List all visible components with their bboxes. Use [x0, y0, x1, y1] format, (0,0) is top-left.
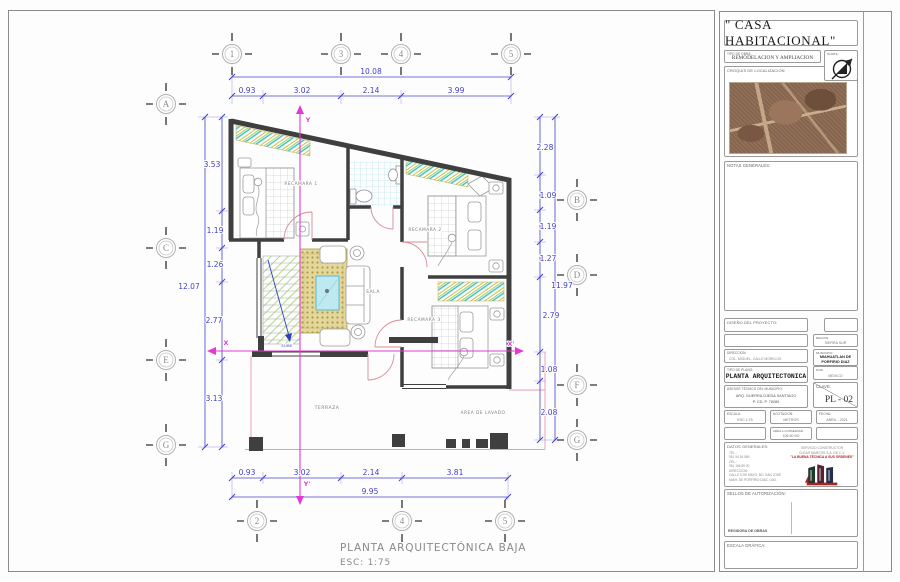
- notas-box: NOTAS GENERALES:: [724, 161, 858, 311]
- acotacion-value: METROS: [771, 418, 811, 422]
- region-box: REGION: SIERRA SUR: [813, 334, 858, 347]
- spare-box-3: [724, 427, 766, 440]
- datos-contact: TEL.: 951 54 34 565 CEL.: 951 166 89 00 …: [729, 451, 781, 482]
- fecha-label: FECHA:: [819, 412, 831, 416]
- empresa-block: SERVICIO CONSTRUCTOR CLEAR MARCOS S.A. D…: [787, 446, 857, 493]
- clave-label: CLAVE:: [816, 384, 831, 389]
- drawing-sheet: 1345245ACEGBDFG10.080.933.022.143.999.95…: [0, 0, 900, 582]
- area-label: AREA A CONSERVAR:: [773, 429, 804, 433]
- tipo-plano-label: TIPO DE PLANO:: [727, 368, 753, 372]
- location-satellite-image: [729, 82, 847, 154]
- tipo-plano-box: TIPO DE PLANO: PLANTA ARQUITECTONICA: [724, 366, 808, 383]
- escala-label: ESCALA:: [727, 412, 741, 416]
- area-value: 106.50 M2: [771, 434, 811, 438]
- escala-grafica-box: ESCALA GRÁFICA:: [724, 541, 858, 569]
- sellos-label: SELLOS DE AUTORIZACIÓN:: [727, 491, 786, 496]
- tipo-obra-box: TIPO DE OBRA: REMODELACION Y AMPLIACION: [724, 50, 821, 63]
- clave-box: CLAVE: PL - 02: [813, 382, 858, 408]
- spare-box-2: [724, 334, 808, 347]
- direccion-value: COL. MIGUEL, CALLE MORELOS: [729, 357, 807, 361]
- diseno-box: DISEÑO DEL PROYECTO:: [724, 318, 808, 332]
- fecha-box: FECHA: ABRIL - 2021: [816, 410, 858, 424]
- direccion-box: DIRECCION: COL. MIGUEL, CALLE MORELOS: [724, 349, 808, 363]
- direccion-label: DIRECCION:: [727, 351, 746, 355]
- spare-box-4: [816, 427, 858, 440]
- datos-box: DATOS GENERALES: TEL.: 951 54 34 565 CEL…: [724, 442, 858, 487]
- sellos-divider: [791, 502, 792, 534]
- asesor-line1: ARQ. GUERRA OJEDA SANTIAGO: [725, 394, 807, 399]
- pais-value: MEXICO: [814, 374, 857, 378]
- empresa-slogan: "LA BUENA TÉCNICA A SUS ÓRDENES": [787, 455, 857, 460]
- sellos-firma: REGIDORA DE OBRAS: [728, 529, 767, 533]
- escala-box: ESCALA: ESC 1:75: [724, 410, 766, 424]
- acotacion-label: ACOTACION:: [773, 412, 793, 416]
- asesor-line2: P. CD. P. 78280: [725, 400, 807, 405]
- municipio-box: MUNICIPIO: MIAHUATLAN DE PORFIRIO DIAZ: [813, 349, 858, 366]
- datos-line: MIAH. DE PORFIRIO DIAZ, OAX.: [729, 478, 781, 482]
- pais-box: PAIS: MEXICO: [813, 366, 858, 380]
- pais-label: PAIS:: [816, 368, 824, 372]
- project-title: " CASA HABITACIONAL": [725, 21, 857, 45]
- fecha-value: ABRIL - 2021: [817, 418, 857, 422]
- diseno-label: DISEÑO DEL PROYECTO:: [727, 320, 777, 325]
- asesor-value: ARQ. GUERRA OJEDA SANTIAGO P. CD. P. 782…: [725, 394, 807, 405]
- datos-label: DATOS GENERALES:: [727, 444, 768, 449]
- sellos-box: SELLOS DE AUTORIZACIÓN: REGIDORA DE OBRA…: [724, 489, 858, 537]
- region-label: REGION:: [816, 336, 829, 340]
- asesor-box: ASESOR TÉCNICO DEL MUNICIPIO: ARQ. GUERR…: [724, 385, 808, 408]
- north-arrow-icon: [830, 56, 854, 87]
- clave-value: PL - 02: [825, 395, 853, 405]
- area-box: AREA A CONSERVAR: 106.50 M2: [770, 427, 812, 440]
- titleblock-title-box: " CASA HABITACIONAL": [724, 20, 858, 46]
- municipio-line2: PORFIRIO DIAZ: [814, 360, 857, 364]
- asesor-label: ASESOR TÉCNICO DEL MUNICIPIO:: [727, 387, 783, 391]
- titleblock-inner-border: [863, 11, 864, 572]
- escala-grafica-label: ESCALA GRÁFICA:: [727, 543, 766, 548]
- municipio-value: MIAHUATLAN DE PORFIRIO DIAZ: [814, 355, 857, 364]
- croquis-label: CROQUIS DE LOCALIZACIÓN: [727, 68, 785, 73]
- tipo-obra-value: REMODELACION Y AMPLIACION: [725, 55, 820, 61]
- region-value: SIERRA SUR: [814, 341, 857, 345]
- notas-label: NOTAS GENERALES:: [727, 163, 770, 168]
- municipio-line1: MIAHUATLAN DE: [814, 355, 857, 359]
- spare-box-1: [824, 318, 858, 332]
- tipo-plano-value: PLANTA ARQUITECTONICA: [725, 373, 807, 380]
- north-box: NORTE:: [824, 50, 858, 81]
- escala-value: ESC 1:75: [725, 418, 765, 422]
- drawing-frame: [8, 10, 715, 572]
- acotacion-box: ACOTACION: METROS: [770, 410, 812, 424]
